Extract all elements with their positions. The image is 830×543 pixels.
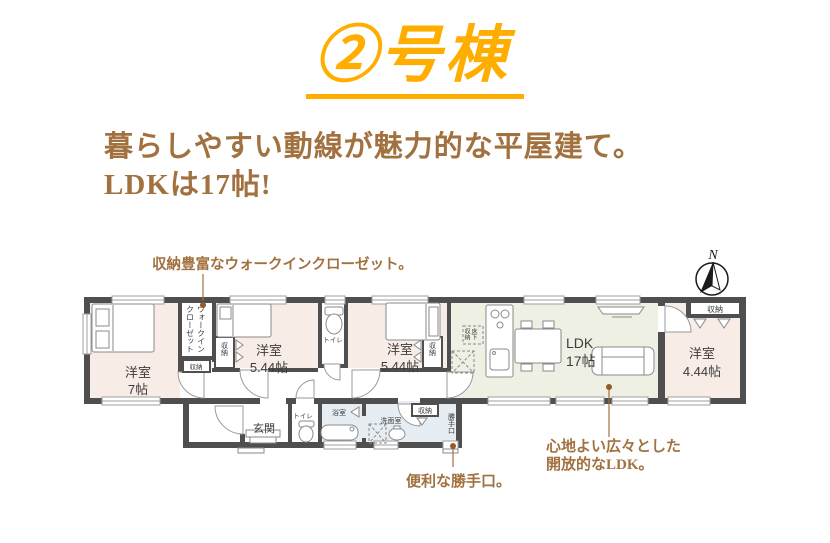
kitchen-icon <box>486 305 513 377</box>
label-west7-name: 洋室 <box>125 365 151 380</box>
label-ldk-name: LDK <box>566 335 594 351</box>
label-entrance: 玄関 <box>253 421 275 435</box>
annotation-backdoor: 便利な勝手口。 <box>406 472 511 490</box>
compass-north-label: N <box>707 248 718 263</box>
label-west544b-name: 洋室 <box>387 342 413 357</box>
floor-plan-image: 洋室 7帖 洋室 5.44帖 洋室 5.44帖 LDK 17帖 洋室 4.44帖… <box>0 0 830 543</box>
label-west544b-size: 5.44帖 <box>381 359 419 374</box>
label-west544a-name: 洋室 <box>256 343 282 358</box>
label-west544a-size: 5.44帖 <box>250 360 288 375</box>
dining-table-icon <box>515 321 561 371</box>
label-storage-washroom: 収納 <box>418 406 432 415</box>
annotation-dot <box>200 302 206 308</box>
annotation-dot <box>606 384 612 390</box>
sofa-icon <box>592 347 654 375</box>
toilet-icon <box>325 307 343 334</box>
label-storage-wic: 収納 <box>190 362 203 371</box>
label-wic-right: ウォークイン <box>197 305 206 353</box>
toilet-icon <box>299 421 314 442</box>
label-underfloor-r: 床下 <box>470 327 477 341</box>
label-ldk-size: 17帖 <box>566 353 596 369</box>
compass-icon: N <box>696 248 728 295</box>
annotation-dot <box>450 443 456 449</box>
bathtub-icon <box>321 425 358 440</box>
label-west444-size: 4.44帖 <box>683 364 721 379</box>
label-storage-b: 収納 <box>429 342 437 357</box>
label-wic-left: クローゼット <box>186 305 195 353</box>
label-backdoor: 勝手口 <box>448 412 456 434</box>
annotation-wic: 収納豊富なウォークインクローゼット。 <box>152 255 413 273</box>
label-bath: 浴室 <box>332 408 346 417</box>
bed-icon <box>386 303 440 340</box>
bed-icon <box>92 304 154 352</box>
label-west444-name: 洋室 <box>689 346 715 361</box>
label-west7-size: 7帖 <box>128 382 148 397</box>
backdoor-step <box>443 449 458 453</box>
label-toilet1: トイレ <box>323 337 343 344</box>
label-underfloor-l: 収納 <box>463 328 470 341</box>
label-toilet2: トイレ <box>293 413 313 420</box>
bed-icon <box>217 304 271 337</box>
label-storage-444: 収納 <box>707 304 723 314</box>
annotation-ldk-line2: 開放的なLDK。 <box>546 455 654 473</box>
annotation-ldk-line1: 心地よい広々とした <box>546 437 681 455</box>
label-washroom: 洗面室 <box>381 416 402 425</box>
label-storage-a: 収納 <box>221 342 229 357</box>
page: ②号棟 暮らしやすい動線が魅力的な平屋建て。 LDKは17帖! <box>0 0 830 543</box>
